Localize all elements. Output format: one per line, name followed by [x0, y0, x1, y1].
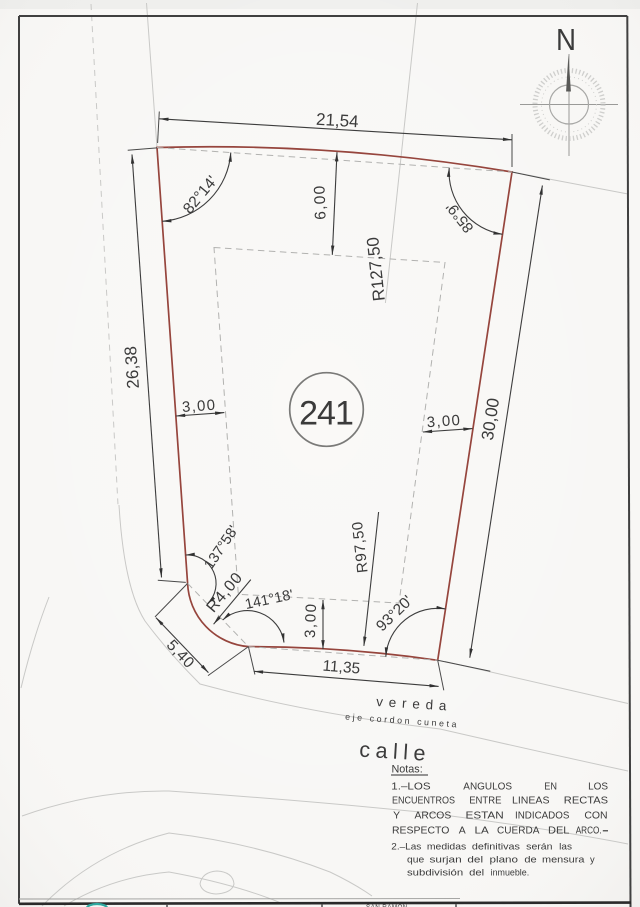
svg-text:N: N — [556, 22, 576, 57]
svg-text:Y: Y — [393, 811, 400, 822]
svg-text:RESPECTO: RESPECTO — [392, 826, 449, 837]
svg-text:inmueble.: inmueble. — [491, 868, 530, 878]
svg-text:INDICADOS: INDICADOS — [515, 811, 569, 822]
svg-text:3,00: 3,00 — [426, 412, 462, 431]
svg-text:EN: EN — [544, 782, 557, 793]
svg-text:ARCOS: ARCOS — [415, 811, 452, 822]
svg-text:Notas:: Notas: — [392, 764, 423, 776]
svg-text:plano: plano — [490, 855, 519, 865]
svg-text:del: del — [467, 855, 483, 865]
svg-text:2.–Las: 2.–Las — [391, 842, 421, 852]
svg-text:LOS: LOS — [588, 782, 608, 793]
svg-text:CON: CON — [584, 811, 607, 822]
svg-text:6,00: 6,00 — [311, 184, 329, 220]
svg-text:ESTAN: ESTAN — [466, 811, 504, 822]
svg-text:subdivisión: subdivisión — [407, 868, 463, 878]
svg-text:241: 241 — [299, 395, 353, 433]
svg-text:21,54: 21,54 — [316, 110, 360, 131]
svg-text:calle: calle — [359, 738, 432, 766]
svg-text:mensura: mensura — [542, 855, 585, 865]
svg-text:ARCO.: ARCO. — [576, 826, 602, 837]
svg-text:definitivas: definitivas — [472, 842, 520, 852]
svg-text:11,35: 11,35 — [322, 658, 361, 678]
svg-text:3,00: 3,00 — [181, 397, 217, 416]
svg-text:de: de — [524, 855, 536, 865]
svg-text:surjan: surjan — [430, 855, 462, 865]
svg-text:RECTAS: RECTAS — [564, 796, 608, 807]
svg-text:del: del — [469, 868, 484, 878]
svg-text:LA: LA — [475, 826, 489, 837]
svg-text:y: y — [590, 855, 595, 865]
svg-text:las: las — [559, 842, 572, 852]
svg-text:DEL: DEL — [548, 826, 570, 837]
svg-text:que: que — [407, 855, 424, 865]
svg-text:ENCUENTROS: ENCUENTROS — [392, 796, 455, 807]
svg-text:LINEAS: LINEAS — [512, 796, 550, 807]
svg-text:medidas: medidas — [427, 842, 467, 852]
svg-text:ENTRE: ENTRE — [469, 796, 501, 807]
svg-text:1.–LOS: 1.–LOS — [391, 782, 430, 793]
svg-text:CUERDA: CUERDA — [497, 826, 539, 837]
svg-text:serán: serán — [526, 842, 552, 852]
svg-text:3,00: 3,00 — [302, 602, 320, 638]
svg-text:26,38: 26,38 — [121, 345, 143, 389]
svg-text:A: A — [459, 826, 466, 837]
svg-text:ANGULOS: ANGULOS — [463, 782, 512, 793]
